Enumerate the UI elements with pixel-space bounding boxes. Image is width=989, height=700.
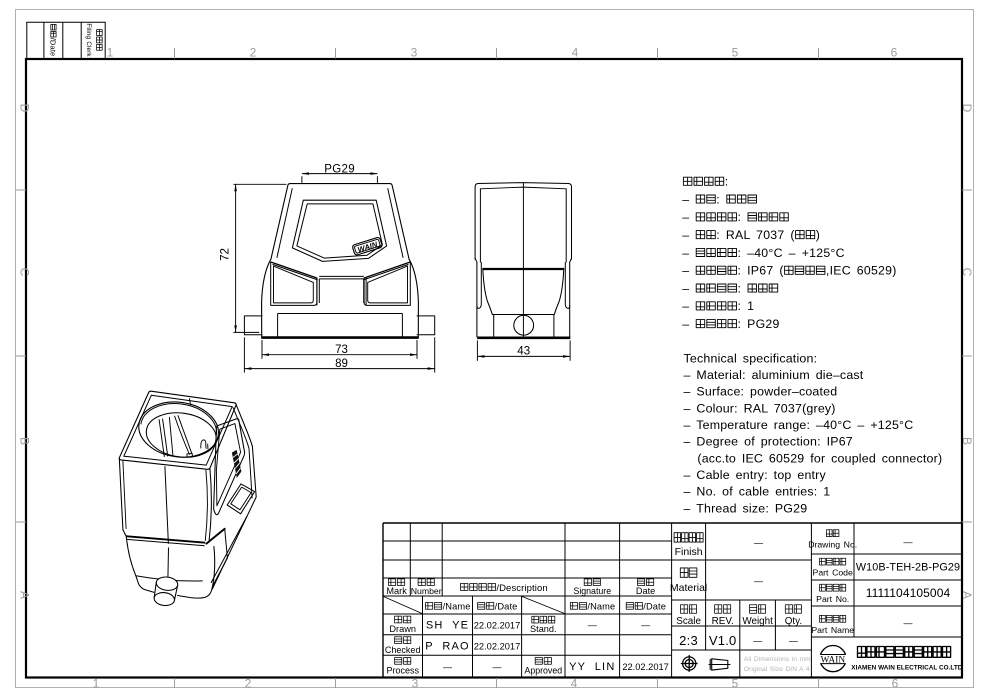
svg-text:: –40°C – +125°C: : –40°C – +125°C [738, 246, 845, 260]
svg-text:5: 5 [732, 46, 739, 60]
svg-text:—: — [754, 576, 763, 586]
svg-text:D: D [960, 104, 974, 113]
svg-text:–: – [682, 192, 689, 206]
svg-text:72: 72 [220, 248, 232, 261]
svg-text:V1.0: V1.0 [709, 633, 737, 648]
svg-text:–: – [682, 228, 689, 242]
svg-text:–: – [682, 317, 689, 331]
svg-text:—: — [904, 618, 913, 628]
svg-text:3: 3 [412, 677, 419, 691]
svg-text:): ) [816, 228, 820, 242]
svg-text:4: 4 [572, 46, 579, 60]
svg-text:PG29: PG29 [324, 164, 355, 176]
svg-text:C: C [18, 268, 32, 277]
svg-text:—: — [753, 636, 762, 646]
svg-text:: IP67 (: : IP67 ( [738, 264, 785, 278]
svg-text:– Thread size: PG29: – Thread size: PG29 [684, 501, 808, 515]
svg-text:Process: Process [386, 666, 419, 676]
svg-text::: : [716, 192, 720, 206]
svg-text:,IEC 60529): ,IEC 60529) [826, 264, 897, 278]
svg-text:/Name: /Name [443, 602, 471, 612]
svg-text:Material: Material [670, 582, 707, 594]
svg-text:Filing Clerk: Filing Clerk [85, 23, 92, 57]
svg-text:—: — [443, 662, 452, 672]
svg-text:22.02.2017: 22.02.2017 [622, 662, 669, 672]
svg-text:3: 3 [411, 46, 418, 60]
svg-text:P RAO: P RAO [425, 640, 470, 652]
svg-text:1111104105004: 1111104105004 [866, 586, 951, 600]
svg-text:– Colour: RAL 7037(grey): – Colour: RAL 7037(grey) [684, 401, 836, 415]
svg-text:WAIN: WAIN [821, 654, 846, 664]
svg-text:–: – [682, 246, 689, 260]
svg-text:: PG29: : PG29 [738, 317, 780, 331]
svg-text:A: A [18, 591, 32, 599]
svg-text:C: C [960, 268, 974, 277]
svg-text::: : [725, 175, 729, 189]
svg-text:Part No.: Part No. [816, 594, 849, 604]
svg-text:: 1: : 1 [738, 299, 755, 313]
svg-text:—: — [789, 636, 798, 646]
svg-text:Date: Date [636, 586, 655, 596]
svg-text:–: – [682, 210, 689, 224]
svg-text:22.02.2017: 22.02.2017 [474, 641, 521, 651]
svg-text:/Description: /Description [496, 583, 547, 594]
svg-text:Finish: Finish [675, 546, 703, 558]
svg-text:–: – [682, 264, 689, 278]
svg-text:/Date: /Date [643, 602, 666, 612]
svg-text:Qty.: Qty. [785, 616, 802, 627]
svg-text:22.02.2017: 22.02.2017 [474, 621, 521, 631]
svg-text:D: D [18, 104, 32, 113]
svg-text:/Name: /Name [587, 602, 615, 612]
svg-text:– Surface: powder–coated: – Surface: powder–coated [684, 385, 838, 399]
svg-text:– Material: aluminium die–cast: – Material: aluminium die–cast [684, 368, 864, 382]
svg-text:—: — [904, 537, 913, 547]
svg-text:2: 2 [250, 46, 257, 60]
svg-text:A: A [960, 591, 974, 599]
svg-text:—: — [493, 662, 502, 672]
svg-text:Number: Number [411, 586, 442, 596]
svg-text:Original Size DIN A 4: Original Size DIN A 4 [744, 666, 810, 673]
svg-text:—: — [588, 620, 597, 630]
svg-text:2:3: 2:3 [679, 633, 698, 648]
svg-text:Weight: Weight [742, 616, 773, 627]
svg-text:Part Name: Part Name [811, 625, 854, 635]
svg-text:4: 4 [571, 677, 578, 691]
svg-text:73: 73 [335, 344, 348, 356]
svg-text:REV.: REV. [712, 616, 734, 627]
svg-text:W10B-TEH-2B-PG29: W10B-TEH-2B-PG29 [856, 562, 960, 574]
svg-text:(acc.to IEC 60529 for coupled: (acc.to IEC 60529 for coupled connector) [697, 451, 942, 465]
svg-text:1: 1 [93, 677, 100, 691]
svg-text:XIAMEN WAIN ELECTRICAL CO.LTD: XIAMEN WAIN ELECTRICAL CO.LTD [851, 664, 962, 671]
svg-text:Checked: Checked [385, 645, 421, 655]
svg-text::: : [738, 210, 742, 224]
svg-text:6: 6 [892, 677, 899, 691]
svg-text:SH YE: SH YE [426, 620, 469, 632]
svg-text:6: 6 [891, 46, 898, 60]
svg-text:B: B [960, 437, 974, 445]
svg-text:: RAL 7037 (: : RAL 7037 ( [716, 228, 795, 242]
svg-text:89: 89 [335, 358, 348, 370]
svg-text:—: — [754, 538, 763, 548]
svg-text:1: 1 [107, 46, 114, 60]
svg-text:–: – [682, 281, 689, 295]
svg-text:Drawing No.: Drawing No. [808, 539, 857, 549]
svg-text:2: 2 [245, 677, 252, 691]
svg-text:–: – [682, 299, 689, 313]
svg-text:5: 5 [732, 677, 739, 691]
svg-text:Technical specification:: Technical specification: [684, 351, 818, 365]
svg-text:– Degree of protection: IP67: – Degree of protection: IP67 [684, 435, 853, 449]
svg-text:– Temperature range: –40°C – +: – Temperature range: –40°C – +125°C [684, 418, 914, 432]
svg-text:Approved: Approved [524, 666, 562, 676]
svg-text:/Date: /Date [495, 602, 518, 612]
svg-text:Drawn: Drawn [389, 624, 416, 634]
svg-text:Signature: Signature [573, 586, 611, 596]
svg-text:Mark: Mark [386, 586, 407, 596]
svg-text:All Dimensions in mm: All Dimensions in mm [744, 656, 811, 663]
svg-text:– No. of cable entries: 1: – No. of cable entries: 1 [684, 485, 831, 499]
svg-text:—: — [641, 620, 650, 630]
svg-text:YY LIN: YY LIN [569, 661, 615, 673]
svg-text:43: 43 [517, 346, 530, 358]
svg-text::: : [738, 281, 742, 295]
svg-text:– Cable entry: top entry: – Cable entry: top entry [684, 468, 827, 482]
svg-text:Stand.: Stand. [530, 624, 557, 634]
svg-text:B: B [18, 437, 32, 445]
svg-text:Scale: Scale [676, 616, 701, 627]
svg-text:Part Code: Part Code [813, 568, 853, 578]
svg-text:/Date: /Date [49, 38, 58, 57]
